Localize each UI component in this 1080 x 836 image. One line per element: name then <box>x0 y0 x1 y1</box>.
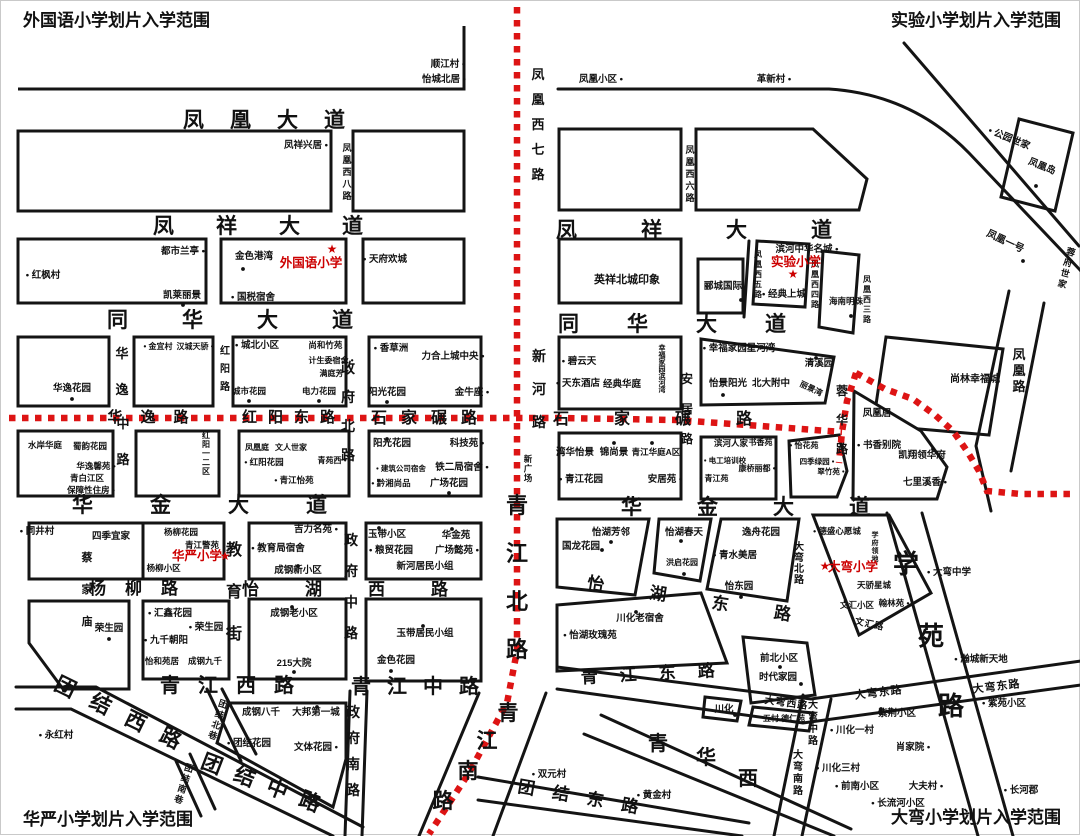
place-label: 力合上城中央 • <box>422 350 486 362</box>
road-label: 怡湖西路 <box>242 579 494 599</box>
place-label: 凤凰居 <box>863 408 892 419</box>
road-label: 凤凰西八路 <box>341 143 352 201</box>
road-label: 凤凰西六路 <box>685 145 695 203</box>
place-label: 广场懿苑 • <box>435 544 480 556</box>
road-label: 石家碾路 <box>370 408 491 427</box>
place-label: 怡和苑居 <box>145 656 180 666</box>
place-label: 保障性住房 • <box>66 485 115 495</box>
place-label: • 青江苑 <box>699 473 728 483</box>
place-label: 五村 德仁苑 <box>763 713 805 723</box>
place-label: 荣生园 <box>94 622 124 634</box>
place-label: 凯翔领华府 <box>898 449 946 461</box>
school-district-map: 凤凰大道凤祥大道凤祥大道同华大道同华大道华金大道华金大道青江西路青江中路青江东路… <box>0 0 1080 835</box>
place-label: • 怡湖玫瑰苑 <box>563 629 617 641</box>
place-label: 蜀韵花园 <box>73 441 107 451</box>
place-label: 紫荆小区 <box>878 707 917 719</box>
place-label: • 天府欢城 <box>363 253 407 265</box>
place-dot <box>721 393 725 397</box>
road-label: 青江西路 <box>160 673 312 697</box>
place-label: 肖家院 • <box>896 741 931 753</box>
place-label: 城市花园 <box>232 386 266 396</box>
district-title: 华严小学划片入学范围 <box>23 809 193 829</box>
place-label: 青江华庭A区 <box>632 447 681 457</box>
place-label: 文汇小区 <box>840 600 875 610</box>
road-label: 凤凰路 <box>1012 347 1026 394</box>
place-dot <box>447 491 451 495</box>
place-label: • 黄金村 <box>637 789 672 801</box>
place-dot <box>879 707 883 711</box>
place-label: • 教育局宿舍 <box>251 542 305 554</box>
place-dot <box>107 637 111 641</box>
place-dot <box>385 437 389 441</box>
place-dot <box>450 527 454 531</box>
place-dot <box>799 682 803 686</box>
map-canvas: 凤凰大道凤祥大道凤祥大道同华大道同华大道华金大道华金大道青江西路青江中路青江东路… <box>1 1 1080 836</box>
place-label: 电力花园 <box>302 386 336 396</box>
road-label: 新广场 <box>524 454 533 483</box>
place-label: • 红阳花园 <box>244 457 283 467</box>
place-label: • 书香别院 <box>857 439 901 451</box>
place-label: 大夫村 • <box>909 780 944 792</box>
place-label: 革新村 • <box>757 73 792 85</box>
place-label: • 幸福家园星河湾 <box>703 342 776 354</box>
place-label: 四季绿园 • <box>800 456 835 466</box>
road-label: 华逸 <box>115 346 128 397</box>
place-label: 金牛座 • <box>454 386 490 398</box>
place-label: • 经典上城 <box>762 288 806 300</box>
place-label: 前北小区 <box>760 652 799 664</box>
road-label: 同华大道 <box>558 312 834 336</box>
place-dot <box>70 397 74 401</box>
place-label: 都市兰亭 • <box>160 245 206 257</box>
place-label: 安居苑 • <box>648 473 683 485</box>
road-label: 大弯东路 <box>854 682 903 702</box>
place-dot <box>1021 259 1025 263</box>
place-label: 怡城北居 • <box>422 73 467 85</box>
road-label: 红阳东路 <box>242 408 346 426</box>
place-label: • 碧云天 <box>562 355 597 367</box>
place-label: 金色港湾 <box>234 250 274 262</box>
place-dot <box>296 564 300 568</box>
place-label: 七里溪香 • <box>903 476 948 488</box>
place-label: 青白江区 <box>70 473 105 483</box>
place-label: • 汇鑫花园 <box>148 607 192 619</box>
place-dot <box>247 399 251 403</box>
place-label: 尚和竹苑 • <box>308 340 347 350</box>
place-dot <box>389 669 393 673</box>
place-label: • 建筑公司宿舍 <box>376 463 426 473</box>
place-label: • 黔湘尚品 <box>371 478 411 488</box>
place-label: • 前南小区 <box>835 780 879 792</box>
place-label: 北大附中 <box>752 377 790 389</box>
place-label: • 金宜村 <box>143 341 172 351</box>
place-label: • 德盛心愿城 <box>813 526 861 536</box>
place-label: 凤凰小区 • <box>579 73 624 85</box>
place-label: • 杨柳小区 <box>141 563 181 573</box>
road-label: 凤祥大道 <box>556 218 896 242</box>
place-dot <box>739 595 743 599</box>
place-dot <box>315 705 319 709</box>
place-label: • 城北小区 <box>235 339 279 351</box>
place-label: 成钢老小区 <box>270 607 318 619</box>
road-label: 石家碾路 <box>552 409 797 428</box>
place-label: • 川化一村 <box>830 724 874 736</box>
place-label: 水岸华庭 <box>27 440 63 450</box>
place-dot <box>377 526 381 530</box>
place-label: 华逸花园 <box>53 382 91 394</box>
place-dot <box>181 303 185 307</box>
place-label: 英祥北城印象 <box>593 272 660 286</box>
place-label: 翰林苑 • <box>879 598 910 608</box>
place-label: 华逸馨苑 • <box>76 461 115 471</box>
place-label: 锦尚景 <box>600 446 629 458</box>
place-label: 计生委宿舍 • <box>308 355 353 365</box>
place-dot <box>609 540 613 544</box>
place-label: 广场花园 <box>430 477 468 489</box>
place-dot <box>421 624 425 628</box>
road-label: 安居路 <box>681 371 694 446</box>
place-label: 清溪园 <box>805 357 834 369</box>
place-label: 文人世家 <box>275 442 308 452</box>
road-label: 大弯北路 <box>794 540 805 586</box>
district-title: 外国语小学划片入学范围 <box>23 10 210 30</box>
place-dot <box>1034 184 1038 188</box>
road-label: 新河路 <box>532 348 547 430</box>
place-label: 天骄星城 <box>857 580 892 590</box>
road-label: 大弯南路 <box>793 748 804 797</box>
school-star-icon: ★ <box>327 242 338 256</box>
place-label: • 九千朝阳 <box>144 634 188 646</box>
place-label: • 红枫村 <box>26 269 61 281</box>
school-label: 大弯小学 <box>828 559 879 574</box>
place-label: 青苑西 • <box>317 455 346 465</box>
place-label: 凯莱丽景 <box>163 289 202 301</box>
place-dot <box>290 605 294 609</box>
place-label: • 天东酒店 <box>556 377 600 389</box>
road-label: 大弯中路 <box>808 698 819 747</box>
place-label: 顺江村 • <box>431 58 466 70</box>
place-label: • 长河郡 <box>1004 784 1039 796</box>
place-label: 华金苑 <box>442 529 471 541</box>
place-label: • 怡花苑 <box>789 440 818 450</box>
place-label: 玉带居民小组 <box>396 627 454 639</box>
road-label: 同华大道 <box>107 308 407 332</box>
place-label: 滨河人家 <box>714 438 749 448</box>
place-label: 翠竹苑 • <box>817 466 845 476</box>
place-label: • 荣生园 <box>189 621 223 633</box>
place-label: 成钢九千 <box>188 656 223 666</box>
place-label: 怡湖春天 <box>665 526 704 538</box>
place-label: • 香草洲 <box>374 342 408 354</box>
place-label: • 大弯中学 <box>927 566 971 578</box>
place-label: 康桥丽都 • <box>738 463 775 473</box>
place-label: • 粮贸花园 <box>369 544 413 556</box>
place-label: 川化老宿舍 <box>615 612 664 624</box>
road-label: 红阳路 <box>220 344 231 393</box>
place-label: 文体花园 • <box>293 741 339 753</box>
place-label: • 紫苑小区 <box>982 697 1026 709</box>
district-title: 实验小学划片入学范围 <box>891 10 1061 30</box>
place-label: • 瀚城新天地 <box>954 653 1008 665</box>
place-dot <box>739 298 743 302</box>
school-label: 华严小学 <box>172 548 223 563</box>
place-label: 尚林幸福城 <box>950 372 1000 385</box>
place-dot <box>385 400 389 404</box>
place-dot <box>241 267 245 271</box>
place-dot <box>814 356 818 360</box>
place-label: 川化 <box>713 703 734 715</box>
place-label: 滨河中华名城 • <box>776 243 840 255</box>
place-label: • 青水美居 <box>713 549 757 561</box>
place-label: 吉力名苑 • <box>294 523 339 535</box>
place-dot <box>679 539 683 543</box>
place-label: • 川化三村 <box>816 762 860 774</box>
place-label: 玉带小区 <box>368 528 407 540</box>
place-dot <box>931 447 935 451</box>
place-label: 郦城国际 <box>704 280 743 292</box>
place-label: 书香苑 • <box>748 437 777 447</box>
place-label: 蓉府世家 <box>1056 245 1078 290</box>
district-title: 大弯小学划片入学范围 <box>891 807 1061 827</box>
road-label: 凤祥大道 <box>153 214 405 238</box>
place-label: • 双元村 <box>532 768 567 780</box>
place-label: 经典华庭 <box>603 378 642 390</box>
place-label: 怡湖芳邻 <box>592 526 631 538</box>
road-label: 凤凰西七路 <box>531 67 545 182</box>
place-dot <box>317 399 321 403</box>
road-label: 凤凰大道 <box>183 108 371 132</box>
place-label: • 永红村 <box>39 729 74 741</box>
place-label: 凤祥兴居 • <box>284 139 329 151</box>
place-label: 汉城天骄 • <box>176 341 213 351</box>
place-label: 红阳一二区 <box>202 430 210 476</box>
place-dot <box>778 665 782 669</box>
place-label: 学府领地 <box>872 530 879 563</box>
road-label: 青江中路 <box>351 674 495 698</box>
place-label: 蔡家庙 <box>81 550 94 628</box>
road-label: 杨柳路 <box>89 578 197 598</box>
place-label: 洪启花园 <box>666 557 698 567</box>
place-dot <box>849 314 853 318</box>
place-label: 湾华怡景 <box>556 446 595 458</box>
place-label: 凤凰庭 <box>245 442 270 452</box>
road-label: 华金大道 <box>621 495 925 519</box>
place-dot <box>292 670 296 674</box>
place-label: 怡东园 <box>725 580 754 592</box>
place-label: • 青江花园 <box>559 473 603 485</box>
place-label: 金色花园 <box>376 654 415 666</box>
place-label: 海南明珠 <box>829 296 864 306</box>
place-label: • 团结花园 <box>227 737 271 749</box>
place-label: 铁二局宿舍 • <box>435 461 489 473</box>
place-label: 成钢八千 <box>242 706 281 718</box>
place-label: 新河居民小组 <box>396 560 454 572</box>
place-label: 凤凰一号 <box>985 227 1026 255</box>
place-dot <box>733 713 737 717</box>
place-label: 阳光花园 <box>368 386 406 398</box>
place-label: 逸舟花园 <box>742 526 780 538</box>
school-label: 外国语小学 <box>279 255 343 270</box>
place-label: 科技苑 • <box>450 437 485 449</box>
place-label: 幸福家园滨河湾 <box>658 343 667 394</box>
road-label: 华金大道 <box>72 493 384 517</box>
road-label: 中路 <box>116 416 130 467</box>
place-label: 杨柳花园 <box>164 527 198 537</box>
place-label: • 青江怡苑 <box>274 475 314 485</box>
place-label: 215大院 <box>277 657 312 669</box>
place-dot <box>600 548 604 552</box>
place-dot <box>682 572 686 576</box>
place-label: • 同井村 <box>20 525 55 537</box>
place-label: • 国税宿舍 <box>231 291 275 303</box>
place-label: 阳光花园 <box>373 437 411 449</box>
road-label: 凤凰西三路 <box>863 275 872 324</box>
school-star-icon: ★ <box>220 549 231 563</box>
place-dot <box>634 610 638 614</box>
place-label: 国龙花园 <box>562 540 600 552</box>
place-label: 四季宜家 <box>92 530 131 542</box>
place-dot <box>650 441 654 445</box>
place-dot <box>612 441 616 445</box>
place-label: 时代家园 <box>759 671 797 683</box>
place-label: 怡景阳光 <box>709 377 748 389</box>
school-star-icon: ★ <box>788 267 799 281</box>
place-label: 满庭芳 • <box>319 368 348 378</box>
school-star-icon: ★ <box>820 559 831 573</box>
road-label: 蓉华路 <box>836 383 849 456</box>
